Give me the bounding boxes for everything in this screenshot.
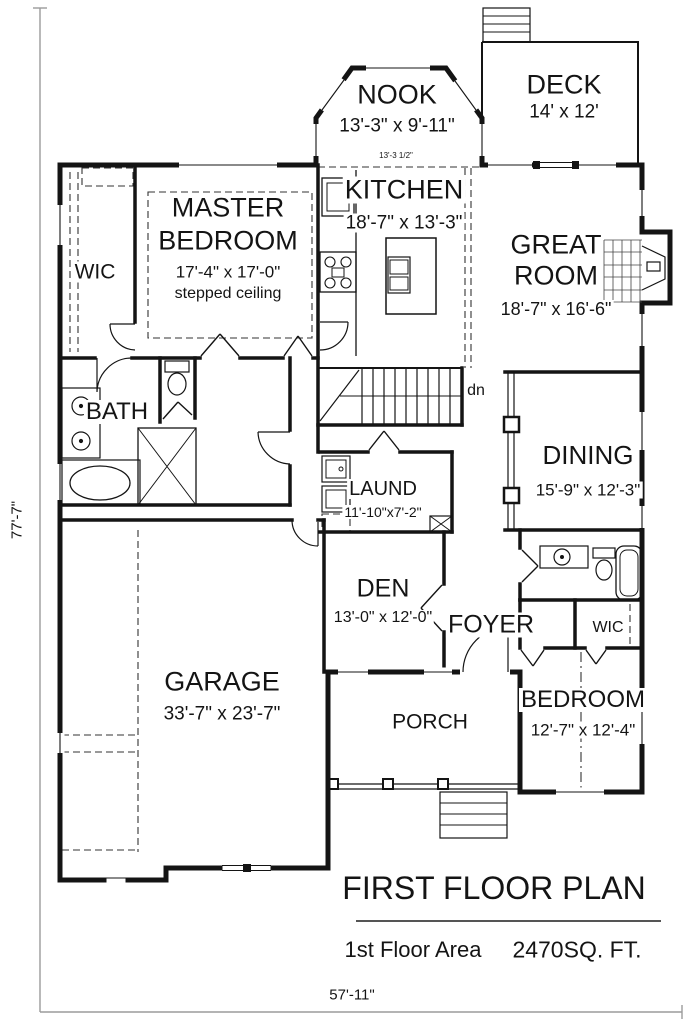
room-label-wic-bedroom: WIC [590, 620, 625, 636]
room-label-deck: DECK [524, 72, 603, 99]
room-size-den: 13'-0" x 12'-0" [332, 610, 434, 626]
title-underline [356, 920, 661, 922]
room-size-master: 17'-4" x 17'-0" [174, 264, 283, 281]
room-size-laundry: 11'-10"x7'-2" [342, 505, 423, 519]
room-label-nook: NOOK [355, 82, 439, 109]
room-size-nook: 13'-3" x 9'-11" [337, 117, 456, 136]
fireplace [604, 240, 665, 302]
porch [328, 779, 520, 838]
kitchen-dim-note: 13'-3 1/2" [377, 152, 415, 160]
overall-width-dimension: 57'-11" [327, 988, 376, 1003]
room-label-bedroom: BEDROOM [519, 688, 647, 712]
room-size-deck: 14' x 12' [527, 103, 601, 122]
room-size-great-room: 18'-7" x 16'-6" [499, 300, 614, 318]
room-label-foyer: FOYER [446, 613, 536, 638]
room-label-dining: DINING [541, 442, 636, 468]
room-label-den: DEN [355, 577, 412, 602]
room-label-kitchen: KITCHEN [343, 177, 466, 204]
room-label-wic-master: WIC [73, 262, 118, 283]
room-label-great-room-2: ROOM [512, 263, 600, 290]
overall-depth-dimension: 77'-7" [10, 499, 25, 541]
stairs-dn-note: dn [465, 383, 487, 399]
room-size-kitchen: 18'-7" x 13'-3" [344, 214, 465, 233]
dining-colonnade [504, 372, 519, 530]
room-size-dining: 15'-9" x 12'-3" [534, 482, 643, 499]
room-label-master-1: MASTER [170, 195, 287, 222]
area-label: 1st Floor Area [343, 939, 484, 961]
room-size-bedroom: 12'-7" x 12'-4" [529, 722, 638, 739]
plan-title: FIRST FLOOR PLAN [340, 872, 647, 904]
stairs [320, 369, 461, 424]
master-bath-fixtures [62, 361, 196, 505]
floor-plan-page: NOOK 13'-3" x 9'-11" DECK 14' x 12' 13'-… [0, 0, 685, 1028]
room-size-garage: 33'-7" x 23'-7" [162, 705, 283, 724]
room-label-bath: BATH [84, 400, 150, 424]
area-value: 2470SQ. FT. [510, 939, 643, 962]
room-label-great-room-1: GREAT [508, 232, 603, 259]
room-note-master: stepped ceiling [173, 286, 284, 302]
room-label-porch: PORCH [390, 712, 470, 733]
room-label-master-2: BEDROOM [156, 228, 300, 255]
room-label-laundry: LAUND [347, 479, 419, 499]
hall-bath-fixtures [540, 546, 642, 600]
room-label-garage: GARAGE [162, 669, 282, 696]
